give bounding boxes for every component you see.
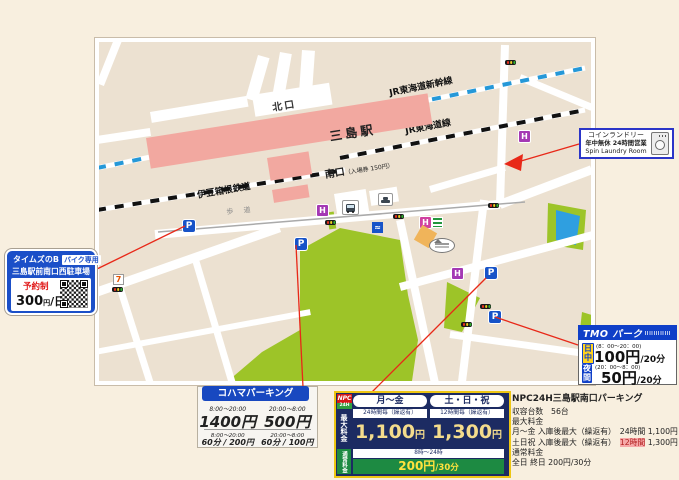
building-logo-bubble — [429, 238, 455, 253]
tmo-park-infobox: TMO パーク 日中 (8：00～20：00) 100円/20分 夜間 (20：… — [578, 325, 677, 385]
qr-code — [60, 280, 88, 308]
night-price: 50円/20分 — [601, 367, 662, 388]
tmo-header-smallprint — [645, 331, 671, 335]
npc-weekend-line: 土日祝 入庫後最大（繰返有） 12時間 1,300円 — [512, 438, 678, 448]
traffic-light-icon — [480, 304, 491, 309]
hotel-icon: H — [519, 131, 530, 142]
laundry-hours: 年中無休 24時間営業 — [581, 140, 651, 148]
times-b-infobox: タイムズのBバイク専用 三島駅前南口西駐車場 予約制 300円/日 — [5, 249, 97, 315]
weekend-sub-header: 12時間毎（繰返有） — [430, 409, 504, 418]
npc-logo: NPC — [337, 394, 352, 403]
daytime-badge: 日中 — [582, 343, 594, 364]
npc-normal-label: 通常料金 — [512, 448, 678, 458]
kohama-night-rate: 60分 / 100円 — [258, 437, 318, 448]
normal-fee-row-label: 通常料金 — [337, 449, 351, 474]
times-b-name: 三島駅前南口西駐車場 — [12, 266, 95, 277]
times-b-brand-row: タイムズのBバイク専用 — [13, 254, 95, 265]
highlighted-duration: 12時間 — [620, 438, 646, 447]
parking-icon: P — [183, 220, 195, 232]
weekend-column-header: 土・日・祝 — [430, 395, 504, 407]
times-b-price: 300円/日 — [16, 290, 65, 309]
tmo-header: TMO パーク — [578, 325, 677, 340]
traffic-light-icon — [461, 322, 472, 327]
npc-details: NPC24H三島駅南口パーキング 収容台数 56台 最大料金 月～金 入庫後最大… — [512, 391, 678, 468]
night-badge: 夜間 — [582, 364, 592, 383]
station-map-flyer: JR東海道新幹線 JR東海道線 伊豆箱根鉄道 歩 道 北口 三島駅 南口（入場券… — [0, 0, 679, 480]
weekend-max-price: 1,300円 — [430, 418, 504, 447]
normal-fee-hours: 8時～24時 — [353, 449, 504, 458]
taxi-stand-icon — [378, 193, 393, 206]
weekday-sub-header: 24時間毎（繰返有） — [353, 409, 427, 418]
kohama-title: コハマパーキング — [202, 386, 309, 401]
bike-only-badge: バイク専用 — [62, 255, 101, 265]
parking-icon: P — [485, 267, 497, 279]
npc-max-label: 最大料金 — [512, 417, 678, 427]
seven-eleven-icon: 7 — [113, 274, 124, 285]
laundry-title: コインランドリー — [581, 131, 651, 140]
npc-normal-line: 全日 終日 200円/30分 — [512, 458, 678, 468]
bus-stop-icon — [342, 200, 359, 215]
kohama-infobox: コハマパーキング 8:00～20:00 20:00～8:00 1400円 500… — [197, 386, 318, 448]
traffic-light-icon — [505, 60, 516, 65]
hotel-icon: H — [452, 268, 463, 279]
max-fee-row-label: 最大料金 — [337, 409, 351, 447]
hotel-icon: H — [317, 205, 328, 216]
npc-details-title: NPC24H三島駅南口パーキング — [512, 391, 678, 404]
npc-price-table: NPC 24H 月～金 土・日・祝 最大料金 24時間毎（繰返有） 12時間毎（… — [334, 391, 511, 478]
parking-icon: P — [295, 238, 307, 250]
landmark-icon: ≈ — [372, 222, 383, 233]
npc-weekday-line: 月～金 入庫後最大（繰返有） 24時間 1,100円 — [512, 427, 678, 437]
times-b-price-panel: 予約制 300円/日 — [11, 278, 91, 311]
map-panel: JR東海道新幹線 JR東海道線 伊豆箱根鉄道 歩 道 北口 三島駅 南口（入場券… — [95, 38, 595, 385]
kohama-day-rate: 60分 / 200円 — [198, 437, 258, 448]
laundry-name-en: Spin Laundry Room — [581, 148, 651, 156]
weekday-column-header: 月～金 — [353, 395, 427, 407]
normal-fee-rate: 200円/30分 — [353, 459, 504, 474]
traffic-light-icon — [325, 220, 336, 225]
washing-machine-icon — [651, 132, 669, 155]
npc-capacity: 収容台数 56台 — [512, 407, 678, 417]
tmo-title: TMO パーク — [583, 326, 642, 340]
flag-icon — [432, 217, 443, 228]
traffic-light-icon — [393, 214, 404, 219]
traffic-light-icon — [112, 287, 123, 292]
laundry-infobox: コインランドリー 年中無休 24時間営業 Spin Laundry Room — [579, 128, 674, 159]
weekday-max-price: 1,100円 — [353, 418, 427, 447]
traffic-light-icon — [488, 203, 499, 208]
parking-icon: P — [489, 311, 501, 323]
